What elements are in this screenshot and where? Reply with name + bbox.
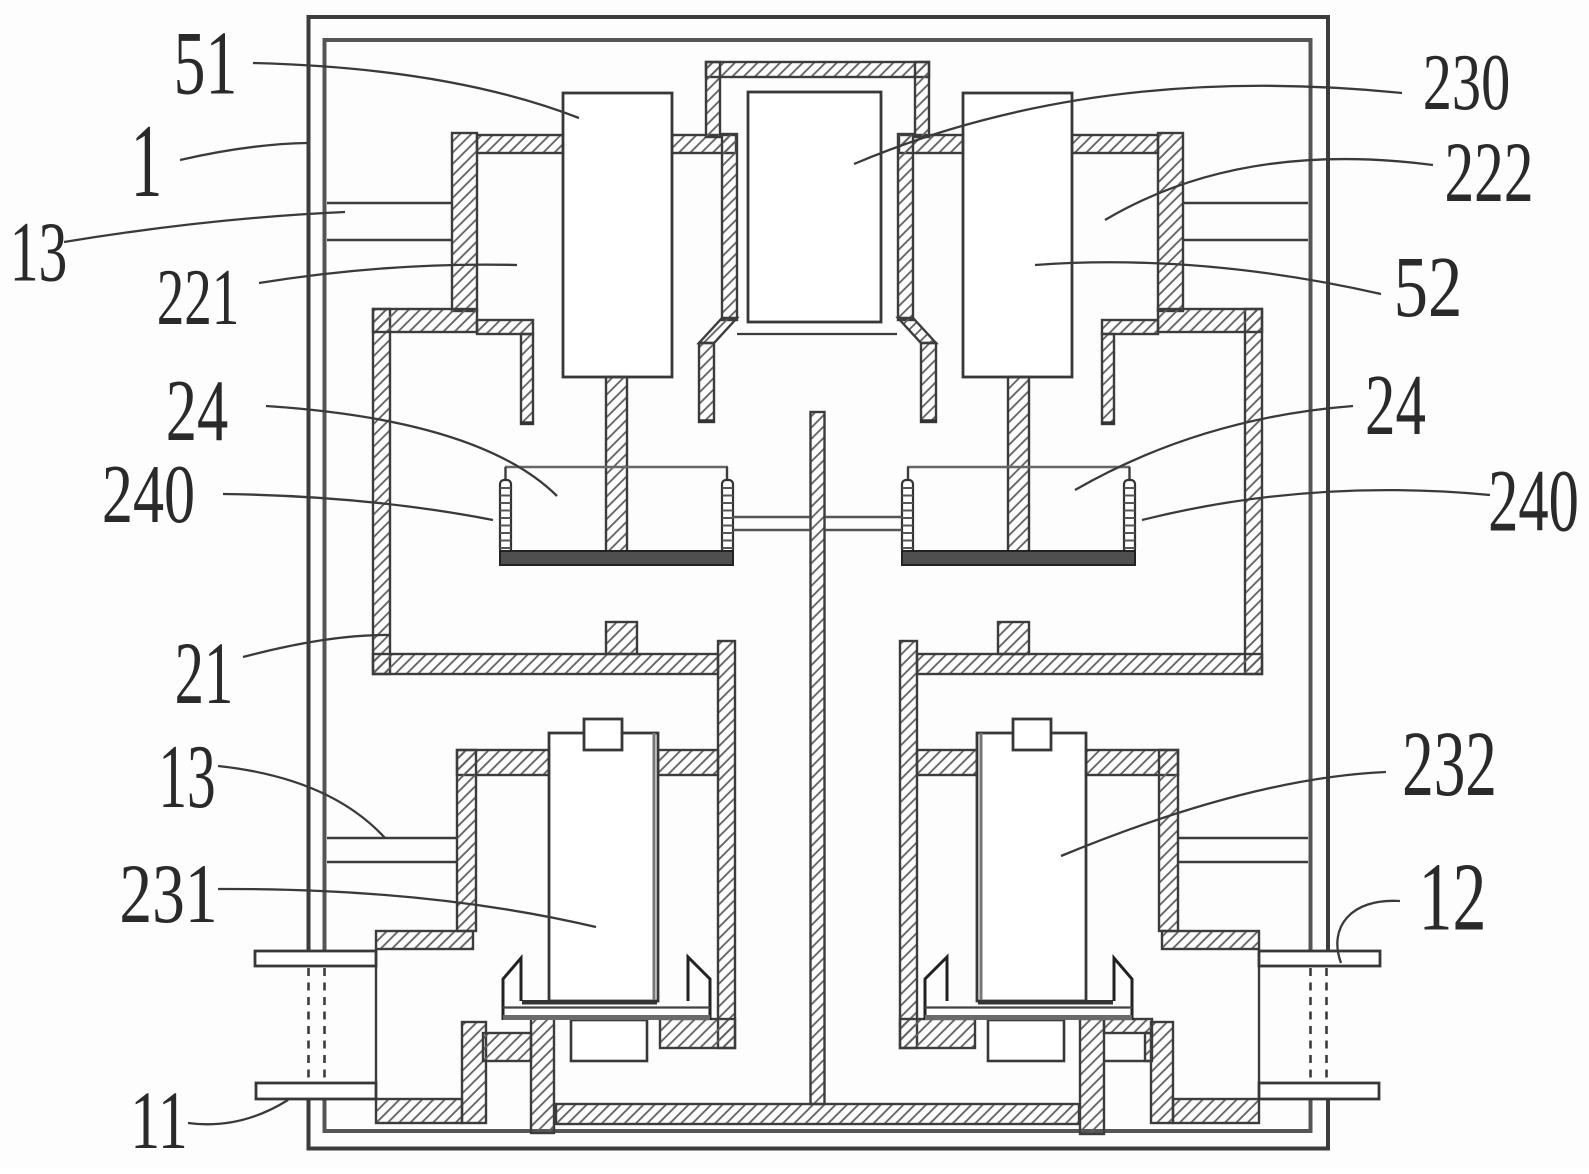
svg-text:24: 24: [1365, 358, 1426, 454]
svg-text:240: 240: [102, 447, 195, 540]
svg-text:12: 12: [1419, 844, 1487, 952]
svg-text:51: 51: [174, 12, 238, 113]
svg-text:52: 52: [1394, 238, 1463, 335]
svg-text:230: 230: [1423, 38, 1510, 128]
svg-text:232: 232: [1402, 713, 1497, 816]
svg-text:231: 231: [119, 847, 217, 941]
svg-text:13: 13: [10, 204, 68, 299]
svg-text:21: 21: [175, 625, 234, 723]
svg-text:222: 222: [1444, 124, 1533, 219]
svg-text:13: 13: [158, 727, 215, 828]
svg-text:221: 221: [157, 251, 240, 341]
svg-text:11: 11: [130, 1075, 188, 1167]
svg-text:240: 240: [1488, 452, 1579, 550]
svg-text:24: 24: [166, 362, 228, 460]
svg-text:1: 1: [131, 103, 163, 219]
